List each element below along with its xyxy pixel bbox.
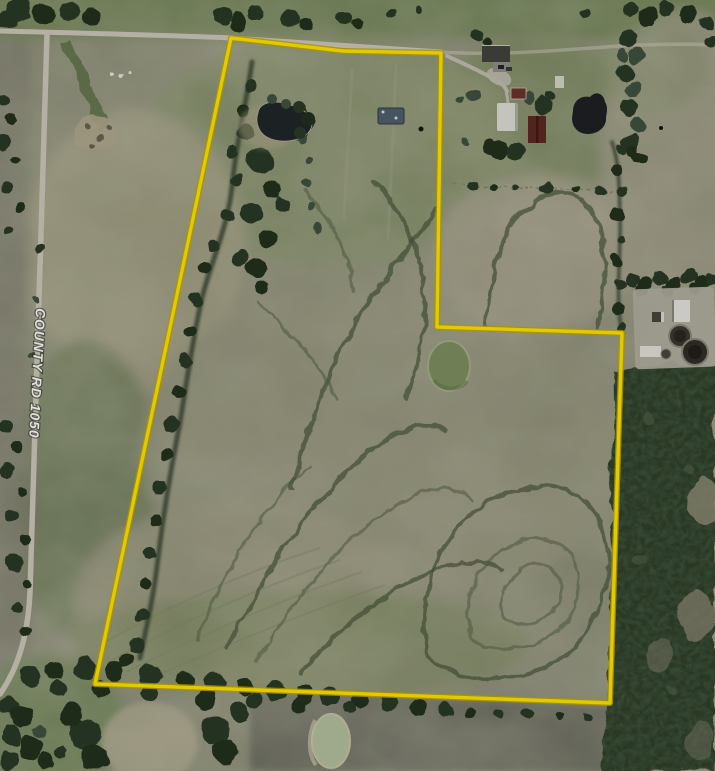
- aerial-imagery: COUNTY RD 1050: [0, 0, 715, 771]
- photo-grain: [0, 0, 715, 771]
- satellite-map: COUNTY RD 1050: [0, 0, 715, 771]
